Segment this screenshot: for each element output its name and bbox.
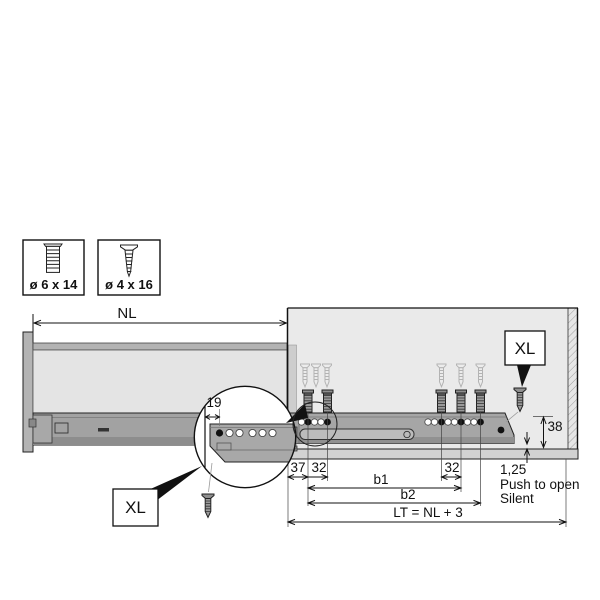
note-push-to-open: Push to open xyxy=(500,477,580,492)
dim-37-label: 37 xyxy=(290,460,305,475)
nl-label: NL xyxy=(117,305,136,322)
screw-legend: ø 6 x 14 ø 4 x 16 xyxy=(23,240,160,295)
rail-holes-front xyxy=(298,419,331,426)
dim-b1-label: b1 xyxy=(373,472,388,487)
xl-cabinet-label: XL xyxy=(515,339,536,358)
euro-screw-icon xyxy=(456,390,467,412)
drawer-front-profile xyxy=(23,332,33,452)
xl-drawer-label: XL xyxy=(125,498,146,517)
nl-dimension xyxy=(33,314,287,334)
legend-label-countersunk: ø 4 x 16 xyxy=(105,277,153,292)
euro-screw-icon xyxy=(44,244,62,272)
installation-drawing: ø 6 x 14 ø 4 x 16 NL xyxy=(0,0,600,600)
rail-slot-detail xyxy=(98,428,109,432)
dim-gap-label: 1,25 xyxy=(500,462,526,477)
dim-32-front-label: 32 xyxy=(311,460,326,475)
pull-in-damper xyxy=(300,429,414,440)
drawer-screw-icon xyxy=(202,494,214,518)
euro-screw-icon xyxy=(436,390,447,412)
dim-lt-label: LT = NL + 3 xyxy=(393,505,463,520)
euro-screw-icon xyxy=(475,390,486,412)
drawer-panel-top-edge xyxy=(33,343,287,350)
legend-label-euro: ø 6 x 14 xyxy=(30,277,78,292)
drawing-canvas: ø 6 x 14 ø 4 x 16 NL xyxy=(0,0,600,600)
cabinet-back-edge xyxy=(568,308,578,449)
xl-callout-drawer: XL xyxy=(113,466,202,526)
dim-19-label: 19 xyxy=(206,395,221,410)
note-silent: Silent xyxy=(500,491,534,506)
cabinet-bottom-shelf xyxy=(281,449,578,459)
dim-38-label: 38 xyxy=(548,419,563,434)
dim-b2-label: b2 xyxy=(400,487,415,502)
dim-32-rear-label: 32 xyxy=(444,460,459,475)
